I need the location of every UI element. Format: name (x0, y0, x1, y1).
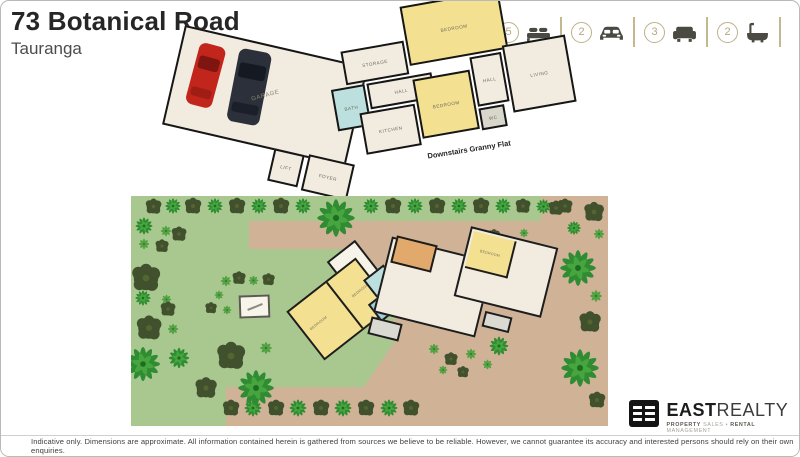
tree-icon (134, 289, 152, 307)
tree-icon (547, 199, 565, 217)
tree-icon (154, 238, 170, 254)
room-label: BEDROOM (432, 99, 460, 109)
logo-tagline: PROPERTY SALES • RENTAL MANAGEMENT (667, 422, 799, 434)
tree-icon (221, 304, 233, 316)
tree-icon (214, 339, 248, 373)
stat-garages: 2 (571, 22, 624, 43)
tree-icon (356, 398, 376, 418)
room-bedroom-lower: BEDROOM (412, 70, 480, 139)
garden-shed (239, 294, 271, 318)
room-living: LIVING (502, 35, 577, 113)
divider (779, 17, 781, 47)
tree-icon (164, 197, 182, 215)
tree-icon (314, 196, 358, 240)
tree-icon (558, 346, 602, 390)
tree-icon (456, 365, 470, 379)
site-plan: BEDROOM BEDROOM BEDROOM (131, 196, 608, 426)
room-label: LIVING (530, 70, 549, 78)
tree-icon (231, 270, 247, 286)
tree-icon (401, 398, 421, 418)
tree-icon (464, 347, 478, 361)
logo-name-bold: EAST (667, 400, 717, 420)
tree-icon (494, 197, 512, 215)
room-label: BEDROOM (309, 315, 328, 331)
tree-icon (437, 364, 449, 376)
room-label: STORAGE (362, 58, 388, 67)
room-label: BEDROOM (440, 23, 468, 33)
disclaimer-text: Indicative only. Dimensions are approxim… (31, 437, 799, 455)
listing-floorplan-page: 73 Botanical Road Tauranga 5 2 (0, 0, 800, 457)
tree-icon (333, 398, 353, 418)
granny-flat-wing: STORAGE BEDROOM BATH HALL KITCHEN BEDROO… (318, 0, 583, 165)
tree-icon (481, 358, 494, 371)
tree-icon (144, 197, 163, 216)
tree-icon (488, 335, 510, 357)
room-label: FOYER (318, 173, 337, 182)
tree-icon (134, 216, 154, 236)
room-label: KITCHEN (379, 125, 403, 134)
logo-name-light: REALTY (717, 400, 789, 420)
house-bedroom-right: BEDROOM (465, 231, 517, 279)
tree-icon (566, 220, 582, 236)
tree-icon (183, 196, 203, 216)
bathroom-count: 2 (717, 22, 738, 43)
east-realty-logo-icon (629, 400, 659, 427)
tree-icon (131, 344, 163, 384)
tree-icon (383, 196, 403, 216)
stat-living-rooms: 3 (644, 22, 697, 43)
tree-icon (587, 390, 607, 410)
room-label: HALL (482, 76, 496, 83)
tree-icon (518, 227, 530, 239)
red-car (184, 42, 226, 110)
room-label: BATH (344, 104, 359, 111)
car-icon (599, 22, 624, 43)
tree-icon (213, 289, 225, 301)
tree-icon (271, 196, 291, 216)
divider (633, 17, 635, 47)
room-kitchen: KITCHEN (359, 104, 421, 155)
tree-icon (288, 398, 308, 418)
tree-icon (406, 197, 424, 215)
tree-icon (167, 346, 191, 370)
granny-flat-floorplan: GARAGE LIFT FOYER STORAGE BEDROOM BATH H… (179, 5, 569, 173)
tree-icon (170, 225, 188, 243)
room-label: HALL (394, 87, 408, 94)
tree-icon (582, 200, 606, 224)
tree-icon (250, 197, 268, 215)
tree-icon (294, 197, 312, 215)
room-lift: LIFT (267, 148, 305, 187)
tree-icon (577, 309, 603, 335)
tree-icon (471, 196, 491, 216)
tree-icon (427, 196, 447, 216)
agency-logo: EASTREALTY PROPERTY SALES • RENTAL MANAG… (629, 400, 799, 434)
room-label: WC (488, 114, 497, 120)
tree-icon (204, 301, 218, 315)
tree-icon (592, 227, 606, 241)
garage-count: 2 (571, 22, 592, 43)
room-wc: WC (478, 104, 507, 130)
tree-icon (258, 340, 274, 356)
divider (706, 17, 708, 47)
tree-icon (450, 197, 468, 215)
tree-icon (261, 272, 276, 287)
tree-icon (379, 398, 399, 418)
tree-icon (235, 367, 277, 409)
disclaimer-bar: Indicative only. Dimensions are approxim… (1, 435, 799, 456)
tree-icon (247, 274, 260, 287)
room-label: BEDROOM (479, 249, 500, 258)
sofa-icon (672, 22, 697, 43)
tree-icon (311, 398, 331, 418)
tree-icon (514, 197, 532, 215)
room-label: LIFT (280, 164, 292, 171)
tree-icon (588, 288, 604, 304)
tree-icon (206, 197, 224, 215)
tree-icon (557, 247, 599, 289)
living-room-count: 3 (644, 22, 665, 43)
tree-icon (193, 375, 219, 401)
tree-icon (134, 313, 164, 343)
dark-car (226, 48, 273, 127)
logo-text: EASTREALTY PROPERTY SALES • RENTAL MANAG… (667, 400, 799, 434)
tree-icon (166, 322, 180, 336)
bath-icon (745, 22, 770, 43)
tree-icon (137, 237, 151, 251)
tree-icon (427, 342, 441, 356)
stat-bathrooms: 2 (717, 22, 770, 43)
tree-icon (227, 196, 247, 216)
tree-icon (362, 197, 380, 215)
